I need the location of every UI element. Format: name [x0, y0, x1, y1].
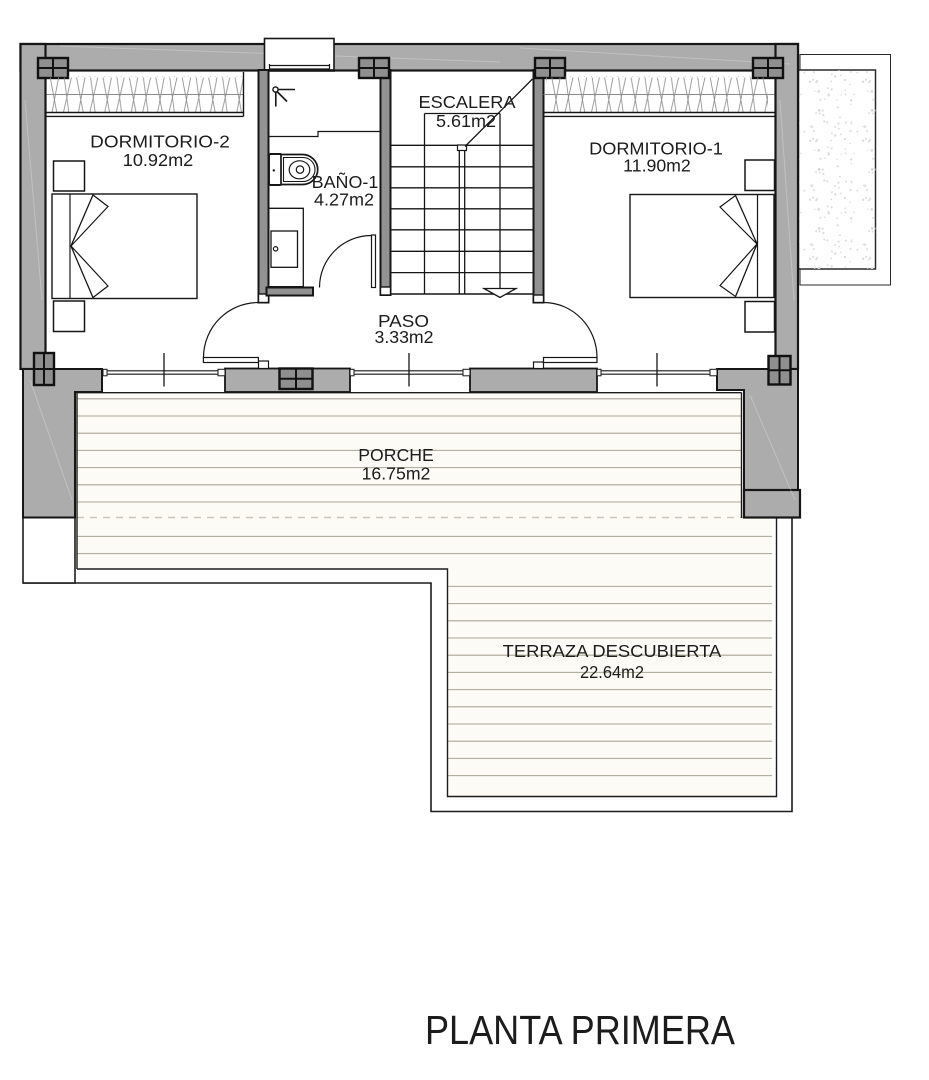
svg-text:TERRAZA DESCUBIERTA: TERRAZA DESCUBIERTA	[503, 641, 722, 661]
svg-text:5.61m2: 5.61m2	[436, 111, 496, 131]
svg-text:11.90m2: 11.90m2	[623, 156, 691, 176]
svg-text:PORCHE: PORCHE	[358, 445, 434, 465]
svg-text:DORMITORIO-2: DORMITORIO-2	[90, 132, 230, 152]
svg-text:4.27m2: 4.27m2	[314, 190, 374, 210]
svg-text:22.64m2: 22.64m2	[580, 662, 644, 682]
svg-text:3.33m2: 3.33m2	[375, 327, 434, 347]
svg-text:10.92m2: 10.92m2	[123, 150, 194, 170]
svg-text:PLANTA PRIMERA: PLANTA PRIMERA	[425, 1007, 736, 1053]
svg-text:16.75m2: 16.75m2	[362, 464, 431, 484]
svg-text:ESCALERA: ESCALERA	[419, 92, 517, 112]
